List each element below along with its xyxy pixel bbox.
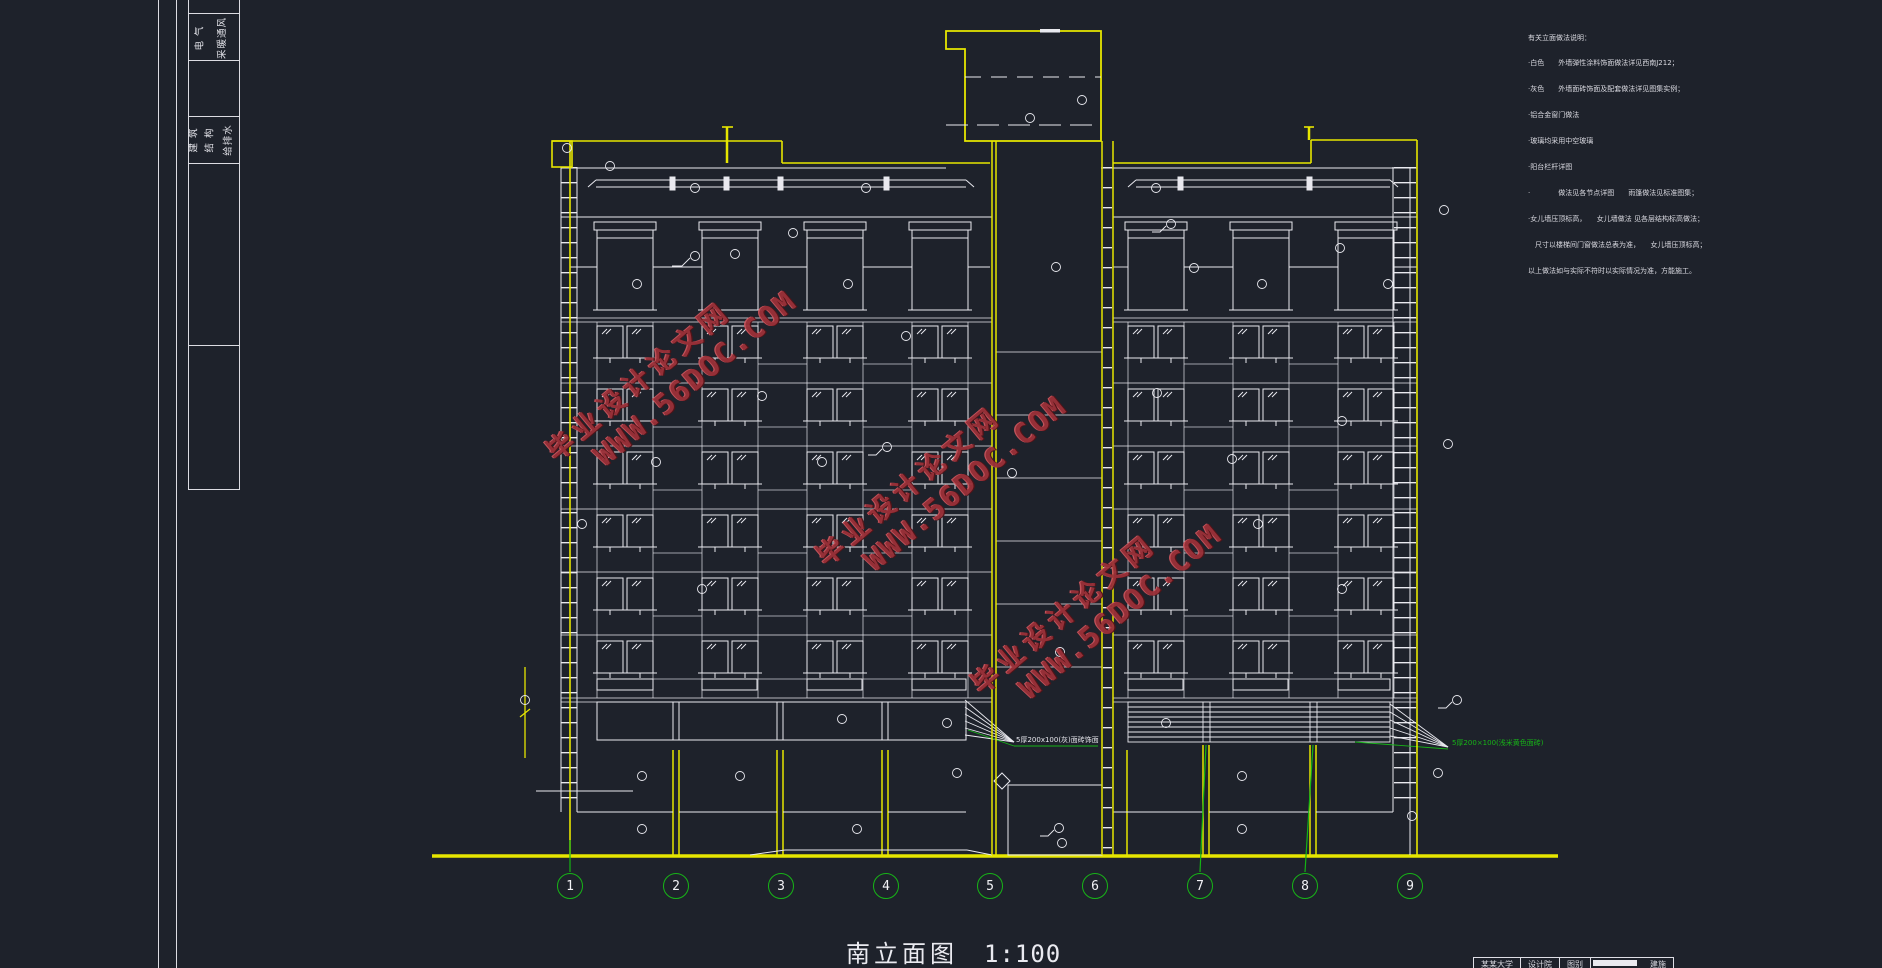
detail-tag (1254, 520, 1263, 529)
detail-tag (789, 229, 798, 238)
detail-tag (902, 332, 911, 341)
detail-tag (633, 280, 642, 289)
discipline-label-structure: 结 构 (202, 127, 216, 152)
detail-tag (953, 769, 962, 778)
drawing-title: 南立面图1:100 (846, 934, 1061, 968)
discipline-label-arch: 建 筑 (186, 127, 200, 152)
axis-bubble-4: 4 (873, 873, 899, 899)
note-line: ·灰色 外墙面砖饰面及配套做法详见图集实例； (1528, 85, 1728, 93)
titleblock-cell: 建施 (1643, 958, 1673, 968)
note-line: ·女儿墙压顶标高， 女儿墙做法 见各层结构标高做法； (1528, 215, 1728, 223)
axis-bubble-9: 9 (1397, 873, 1423, 899)
detail-tag (818, 458, 827, 467)
axis-bubble-1: 1 (557, 873, 583, 899)
discipline-label-hvac: 采暖通风 (214, 17, 228, 59)
detail-tag (1152, 184, 1161, 193)
detail-tag (1336, 244, 1345, 253)
roof-tower (946, 29, 1101, 141)
detail-tag (1440, 206, 1449, 215)
axis-leaders (570, 745, 1313, 872)
detail-tag (1238, 772, 1247, 781)
tower-roof-tick (1040, 29, 1060, 33)
detail-tag (638, 772, 647, 781)
stair-shaft (992, 141, 1113, 855)
detail-tag (1052, 263, 1061, 272)
louver-band (1128, 702, 1448, 749)
detail-tag (1258, 280, 1267, 289)
entrance (750, 773, 1102, 855)
pilaster-right (1393, 167, 1410, 855)
axis-label: 1 (566, 879, 574, 894)
detail-tag (943, 719, 952, 728)
axis-bubble-6: 6 (1082, 873, 1108, 899)
note-line: ·玻璃均采用中空玻璃 (1528, 137, 1728, 145)
detail-tag (1444, 440, 1453, 449)
detail-tag (1434, 769, 1443, 778)
detail-tag (853, 825, 862, 834)
note-line: 以上做法如与实际不符时以实际情况为准，方能施工。 (1528, 267, 1728, 275)
pilaster-left (561, 167, 577, 812)
detail-tag (1008, 469, 1017, 478)
detail-tag (1384, 280, 1393, 289)
detail-tag (862, 184, 871, 193)
detail-tag (691, 184, 700, 193)
axis-label: 4 (882, 879, 890, 894)
detail-tag (578, 520, 587, 529)
titleblock-filled-cell (1593, 960, 1637, 966)
notes-title: 有关立面做法说明： (1528, 34, 1728, 42)
detail-tag (1228, 455, 1237, 464)
axis-label: 3 (777, 879, 785, 894)
detail-tag (1338, 585, 1347, 594)
axis-label: 5 (986, 879, 994, 894)
note-line: ·铝合金窗门做法 (1528, 111, 1728, 119)
detail-tag (1058, 839, 1067, 848)
note-line: ·白色 外墙弹性涂料饰面做法详见西南J212； (1528, 59, 1728, 67)
title-scale: 1:100 (984, 940, 1061, 968)
detail-tag (638, 825, 647, 834)
note-line: · 做法见各节点详图 雨篷做法见标准图集； (1528, 189, 1728, 197)
detail-tag (1162, 719, 1171, 728)
axis-bubble-7: 7 (1187, 873, 1213, 899)
axis-label: 6 (1091, 879, 1099, 894)
detail-tag (1238, 825, 1247, 834)
discipline-label-plumbing: 给排水 (220, 124, 234, 156)
detail-tag (1190, 264, 1199, 273)
tile-annotation-right: 5厚200×100(浅米黄色面砖) (1452, 738, 1544, 748)
axis-label: 8 (1301, 879, 1309, 894)
axis-label: 9 (1406, 879, 1414, 894)
general-notes: 有关立面做法说明： ·白色 外墙弹性涂料饰面做法详见西南J212； ·灰色 外墙… (1528, 17, 1728, 293)
note-line: ·阳台栏杆详图 (1528, 163, 1728, 171)
titleblock-cell: 图别 (1560, 958, 1591, 968)
title-text: 南立面图 (846, 940, 958, 968)
bottom-title-block: 某某大学 设计院 图别 建施 (1473, 957, 1674, 968)
detail-tag (1408, 812, 1417, 821)
axis-label: 7 (1196, 879, 1204, 894)
detail-tag (606, 162, 615, 171)
ground-columns (673, 745, 1316, 855)
axis-bubble-5: 5 (977, 873, 1003, 899)
parapet-railing (588, 177, 1398, 190)
building-outline (552, 127, 1417, 856)
storefront-band (597, 702, 966, 740)
detail-tag (844, 280, 853, 289)
axis-bubble-2: 2 (663, 873, 689, 899)
axis-label: 2 (672, 879, 680, 894)
detail-tag (758, 392, 767, 401)
discipline-label-electrical: 电 气 (192, 25, 206, 50)
note-line: 尺寸以楼梯间门窗做法总表为准， 女儿墙压顶标高； (1528, 241, 1728, 249)
titleblock-cell: 某某大学 (1474, 958, 1521, 968)
detail-tag (838, 715, 847, 724)
titleblock-cell: 设计院 (1521, 958, 1560, 968)
cad-canvas[interactable]: 电 气 采暖通风 建 筑 结 构 给排水 有关立面做法说明： ·白色 外墙弹性涂… (0, 0, 1882, 968)
axis-bubble-8: 8 (1292, 873, 1318, 899)
detail-tag (731, 250, 740, 259)
detail-tag (736, 772, 745, 781)
axis-bubble-3: 3 (768, 873, 794, 899)
tile-annotation-left: 5厚200x100(灰)面砖饰面 (1016, 735, 1099, 745)
